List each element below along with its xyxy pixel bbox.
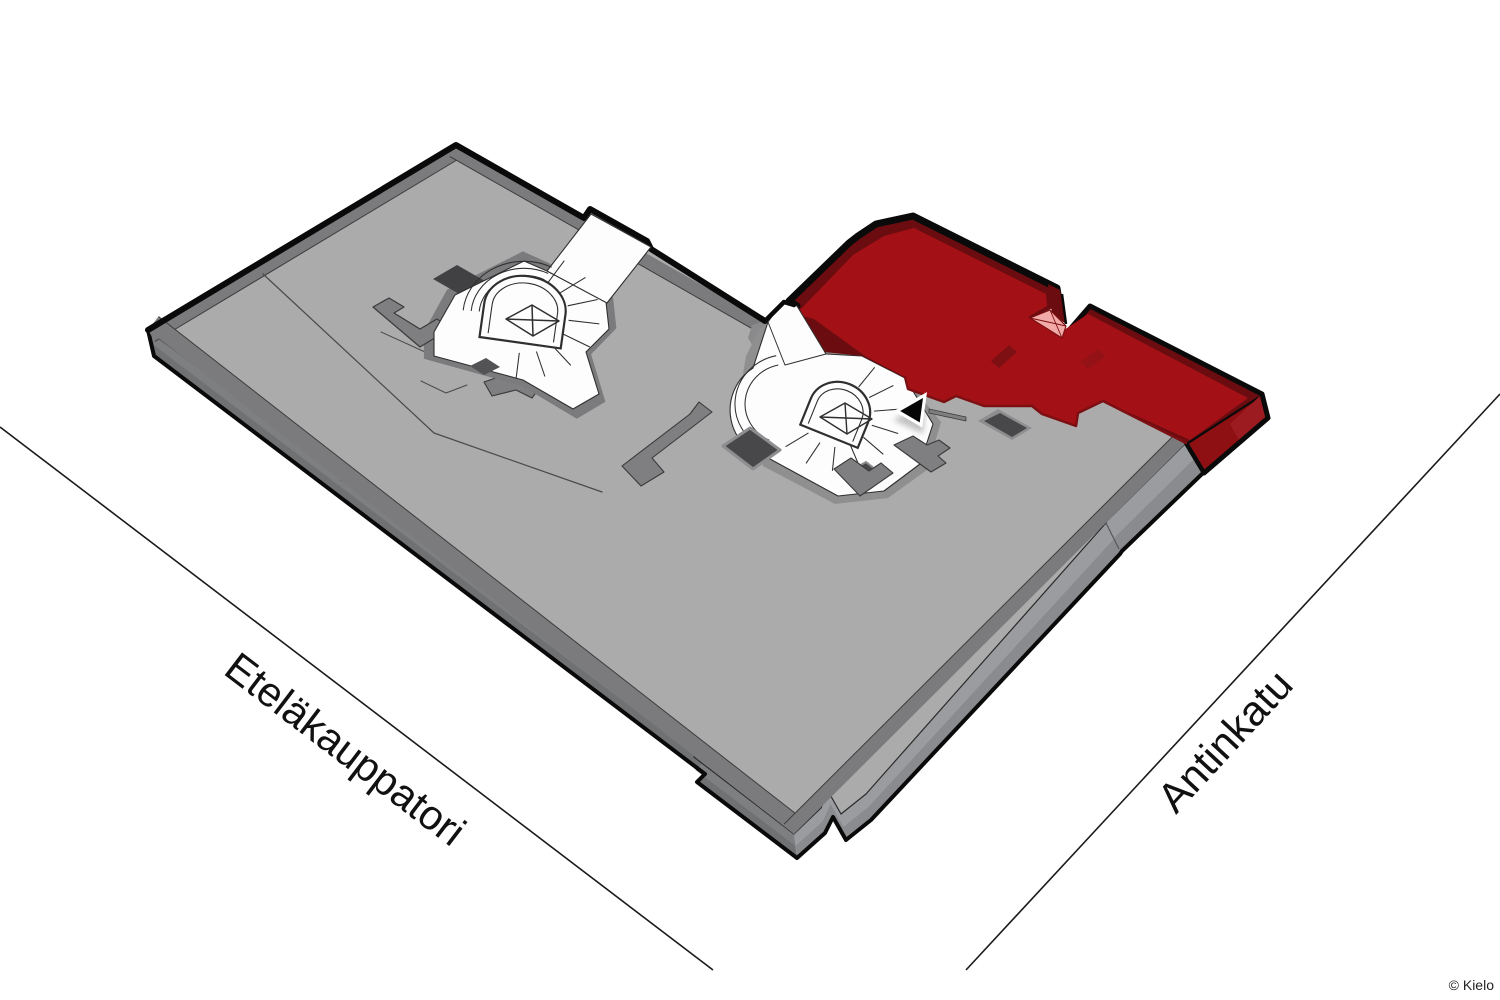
svg-text:© Kielo: © Kielo — [1449, 977, 1495, 993]
